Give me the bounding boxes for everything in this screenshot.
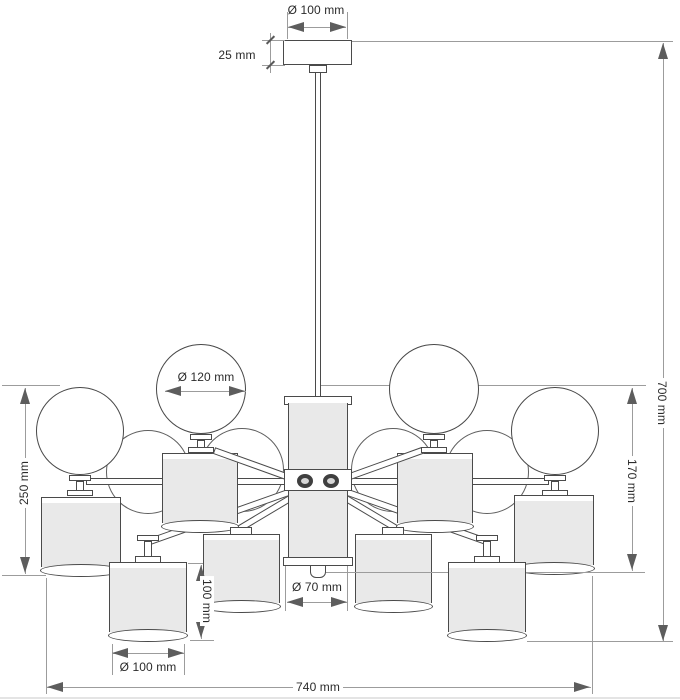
ball-stem-connector xyxy=(67,490,93,496)
page-bottom-rule xyxy=(0,697,680,699)
ball-stem-connector xyxy=(188,447,214,453)
ball-stem-connector xyxy=(230,527,252,535)
shade-bottom-rim xyxy=(354,600,433,613)
ball-stem-connector xyxy=(382,527,404,535)
finial xyxy=(310,565,326,578)
chandelier-dimension-drawing: Ø 100 mm 25 mm Ø 120 mm 700 mm 170 mm 25… xyxy=(0,0,680,700)
upper-section-height-label: 170 mm xyxy=(625,456,639,506)
extension-line xyxy=(184,644,185,675)
glass-ball-icon xyxy=(36,387,124,475)
ball-diameter-label: Ø 120 mm xyxy=(178,370,235,384)
lamp-shade xyxy=(162,453,238,533)
ceiling-canopy xyxy=(283,40,352,65)
column-lower-body xyxy=(288,490,348,559)
extension-line xyxy=(46,578,47,694)
dimension-arrowhead xyxy=(287,597,303,607)
extension-line xyxy=(262,40,285,41)
dimension-arrowhead xyxy=(168,648,184,658)
shade-body xyxy=(162,459,238,523)
lamp-shade xyxy=(355,534,432,613)
ball-stem-connector xyxy=(542,490,568,496)
glass-ball-icon xyxy=(511,387,599,475)
shade-bottom-rim xyxy=(161,520,239,533)
extension-line xyxy=(352,41,673,42)
arm-assembly-height-label: 250 mm xyxy=(17,458,31,508)
extension-line xyxy=(320,385,646,386)
ball-stem-connector xyxy=(474,556,500,563)
hanging-rod xyxy=(315,66,321,397)
arm-socket-icon xyxy=(323,474,339,488)
dimension-arrowhead xyxy=(658,625,668,641)
shade-body xyxy=(41,503,121,567)
column-hub xyxy=(284,469,352,491)
dimension-arrowhead xyxy=(288,22,304,32)
extension-line xyxy=(347,12,348,39)
dimension-arrowhead xyxy=(330,22,346,32)
extension-line xyxy=(592,576,593,694)
canopy-diameter-label: Ø 100 mm xyxy=(288,3,345,17)
column-bottom-cap xyxy=(283,557,353,566)
shade-body xyxy=(448,568,526,632)
overall-height-label: 700 mm xyxy=(655,378,669,428)
dimension-arrowhead xyxy=(47,682,63,692)
shade-height-label: 100 mm xyxy=(200,576,214,626)
shade-body xyxy=(397,459,473,523)
dimension-arrowhead xyxy=(627,554,637,570)
glass-ball-icon xyxy=(389,344,479,434)
shade-diameter-label: Ø 100 mm xyxy=(120,660,177,674)
extension-line xyxy=(2,385,60,386)
shade-body xyxy=(109,568,187,632)
ball-stem-connector xyxy=(421,447,447,453)
extension-line xyxy=(527,641,673,642)
dimension-arrowhead xyxy=(229,386,245,396)
shade-bottom-rim xyxy=(396,520,474,533)
dimension-arrowhead xyxy=(112,648,128,658)
column-upper-body xyxy=(288,403,348,471)
canopy-height-label: 25 mm xyxy=(218,48,255,62)
lamp-shade xyxy=(514,495,594,575)
ball-stem-connector xyxy=(135,556,161,563)
dimension-arrowhead xyxy=(20,388,30,404)
shade-body xyxy=(514,501,594,565)
dimension-arrowhead xyxy=(20,557,30,573)
dimension-arrowhead xyxy=(627,388,637,404)
extension-line xyxy=(262,65,285,66)
dimension-arrowhead xyxy=(165,386,181,396)
overall-width-label: 740 mm xyxy=(293,680,343,694)
dimension-arrowhead xyxy=(574,682,590,692)
dimension-arrowhead xyxy=(658,43,668,59)
dimension-arrowhead xyxy=(331,597,347,607)
shade-bottom-rim xyxy=(447,629,527,642)
extension-line xyxy=(285,566,286,611)
shade-bottom-rim xyxy=(108,629,188,642)
lamp-shade xyxy=(203,534,280,613)
lamp-shade xyxy=(109,562,187,642)
shade-body xyxy=(203,540,280,603)
arm-socket-icon xyxy=(297,474,313,488)
column-diameter-label: Ø 70 mm xyxy=(292,580,342,594)
dimension-line xyxy=(663,43,664,642)
extension-line xyxy=(190,640,214,641)
lamp-shade xyxy=(448,562,526,642)
lamp-shade xyxy=(397,453,473,533)
rod-adapter xyxy=(309,65,327,73)
extension-line xyxy=(2,575,46,576)
